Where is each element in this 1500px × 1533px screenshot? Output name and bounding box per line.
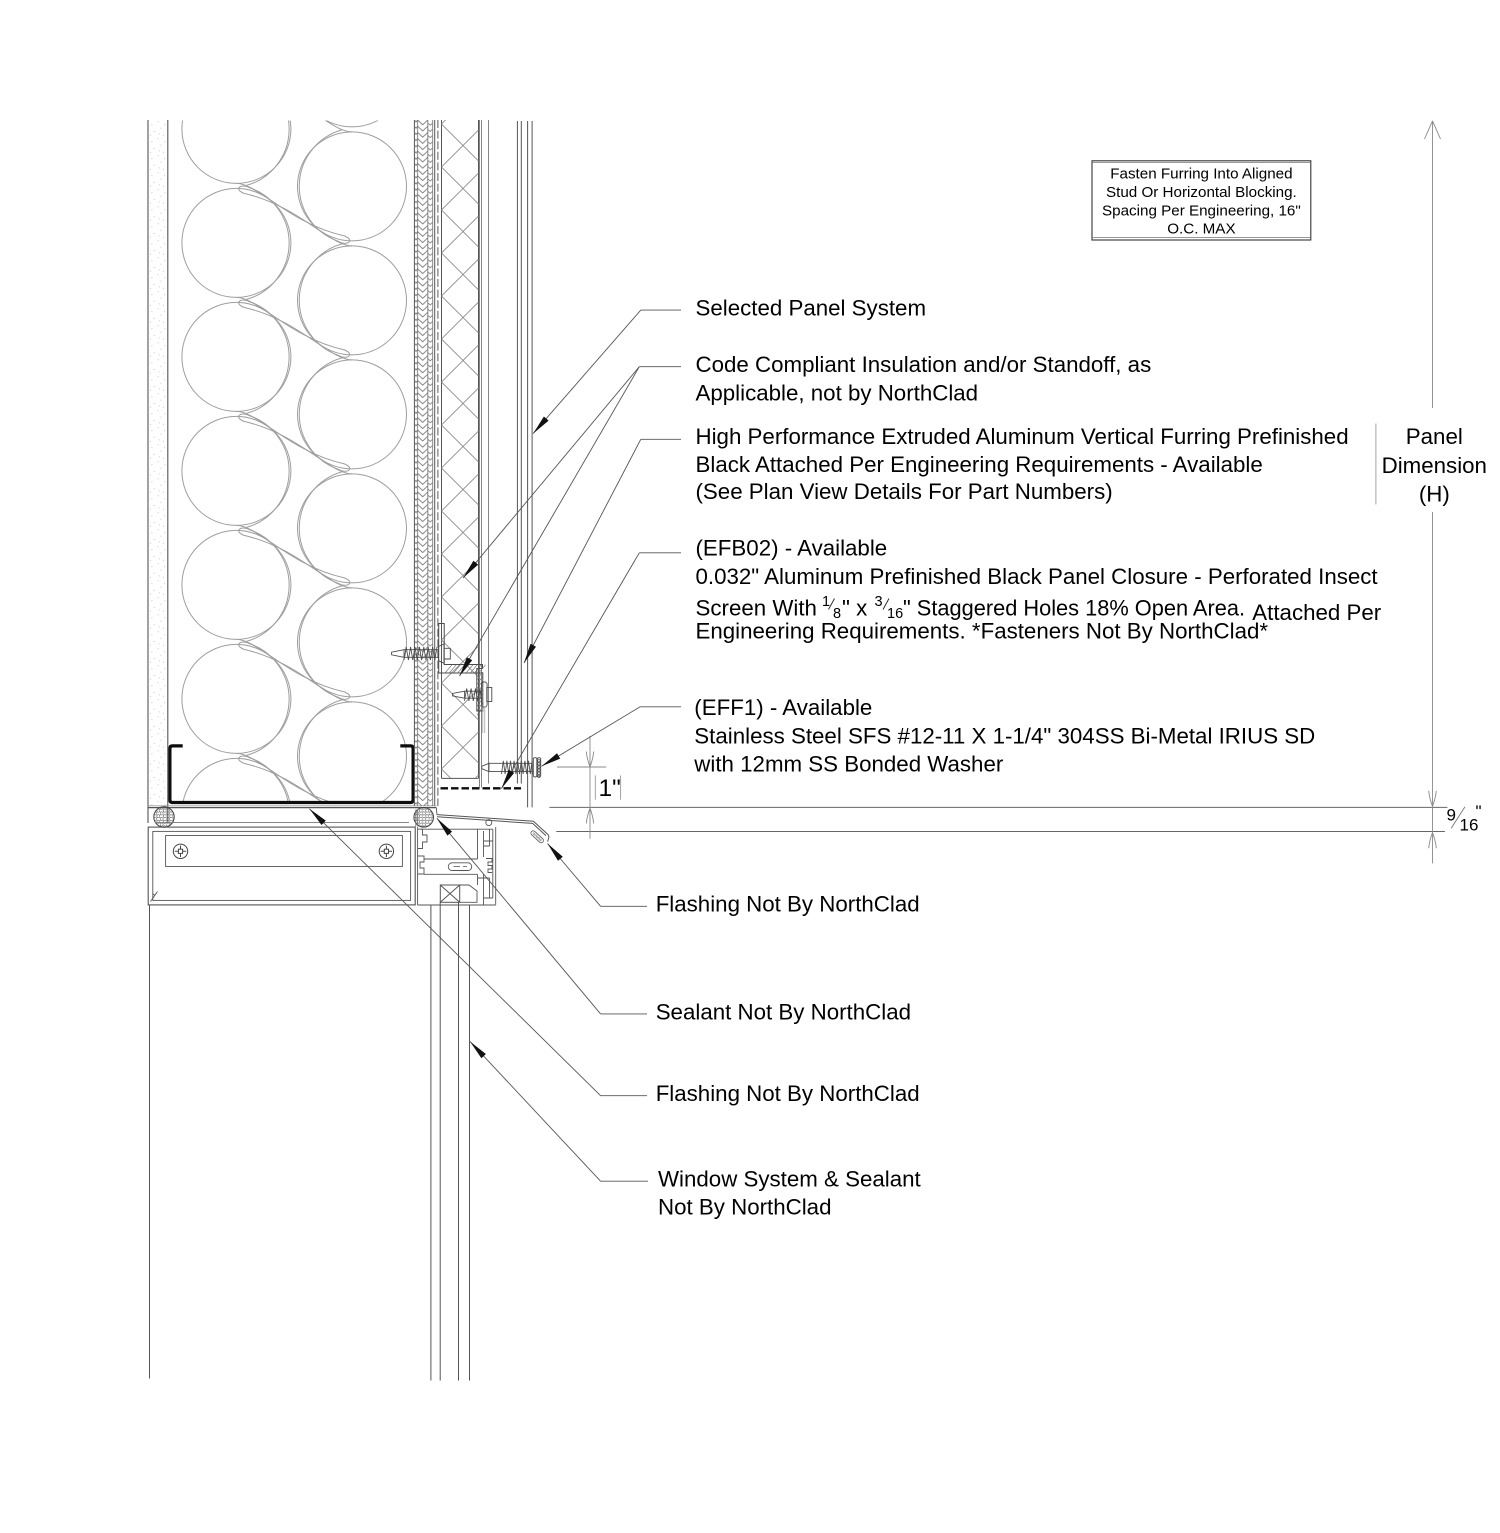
svg-text:Flashing Not By NorthClad: Flashing Not By NorthClad [656, 1081, 920, 1106]
svg-text:Engineering Requirements. *Fas: Engineering Requirements. *Fasteners Not… [696, 619, 1269, 644]
svg-text:Attached Per: Attached Per [1252, 600, 1381, 625]
svg-text:(EFB02) - Available: (EFB02) - Available [696, 536, 888, 561]
svg-text:Not By NorthClad: Not By NorthClad [658, 1194, 832, 1219]
svg-text:Window System & Sealant: Window System & Sealant [658, 1166, 922, 1191]
svg-text:Stainless Steel SFS #12-11 X 1: Stainless Steel SFS #12-11 X 1-1/4" 304S… [694, 723, 1315, 748]
svg-text:Selected Panel System: Selected Panel System [696, 295, 927, 320]
svg-text:": " [1476, 802, 1482, 821]
svg-text:1": 1" [599, 775, 621, 802]
svg-text:O.C. MAX: O.C. MAX [1167, 221, 1235, 238]
svg-text:with 12mm SS Bonded Washer: with 12mm SS Bonded Washer [693, 752, 1004, 777]
svg-text:Black Attached Per Engineering: Black Attached Per Engineering Requireme… [696, 452, 1263, 477]
svg-text:Panel: Panel [1406, 424, 1463, 449]
svg-text:(EFF1) - Available: (EFF1) - Available [694, 695, 872, 720]
svg-text:Dimension: Dimension [1382, 453, 1487, 478]
svg-text:1: 1 [822, 594, 830, 610]
svg-text:Stud Or Horizontal Blocking.: Stud Or Horizontal Blocking. [1106, 184, 1297, 201]
svg-text:" Staggered Holes 18% Open Are: " Staggered Holes 18% Open Area. [903, 595, 1245, 620]
svg-text:Flashing Not By NorthClad: Flashing Not By NorthClad [656, 891, 920, 916]
svg-text:Sealant Not By NorthClad: Sealant Not By NorthClad [656, 999, 911, 1024]
svg-text:Applicable, not by NorthClad: Applicable, not by NorthClad [696, 380, 979, 405]
svg-text:" x: " x [842, 595, 867, 620]
svg-text:Screen With: Screen With [696, 595, 817, 620]
svg-text:High Performance Extruded Alum: High Performance Extruded Aluminum Verti… [696, 424, 1349, 449]
svg-text:0.032" Aluminum Prefinished Bl: 0.032" Aluminum Prefinished Black Panel … [696, 564, 1379, 589]
svg-text:Code Compliant Insulation and/: Code Compliant Insulation and/or Standof… [696, 352, 1152, 377]
svg-text:Fasten Furring Into Aligned: Fasten Furring Into Aligned [1110, 166, 1292, 183]
svg-text:(See Plan View Details For Par: (See Plan View Details For Part Numbers) [696, 479, 1113, 504]
svg-text:9: 9 [1447, 806, 1456, 825]
svg-text:Spacing Per Engineering, 16": Spacing Per Engineering, 16" [1102, 202, 1301, 219]
svg-text:3: 3 [875, 594, 883, 610]
svg-text:(H): (H) [1419, 482, 1450, 507]
